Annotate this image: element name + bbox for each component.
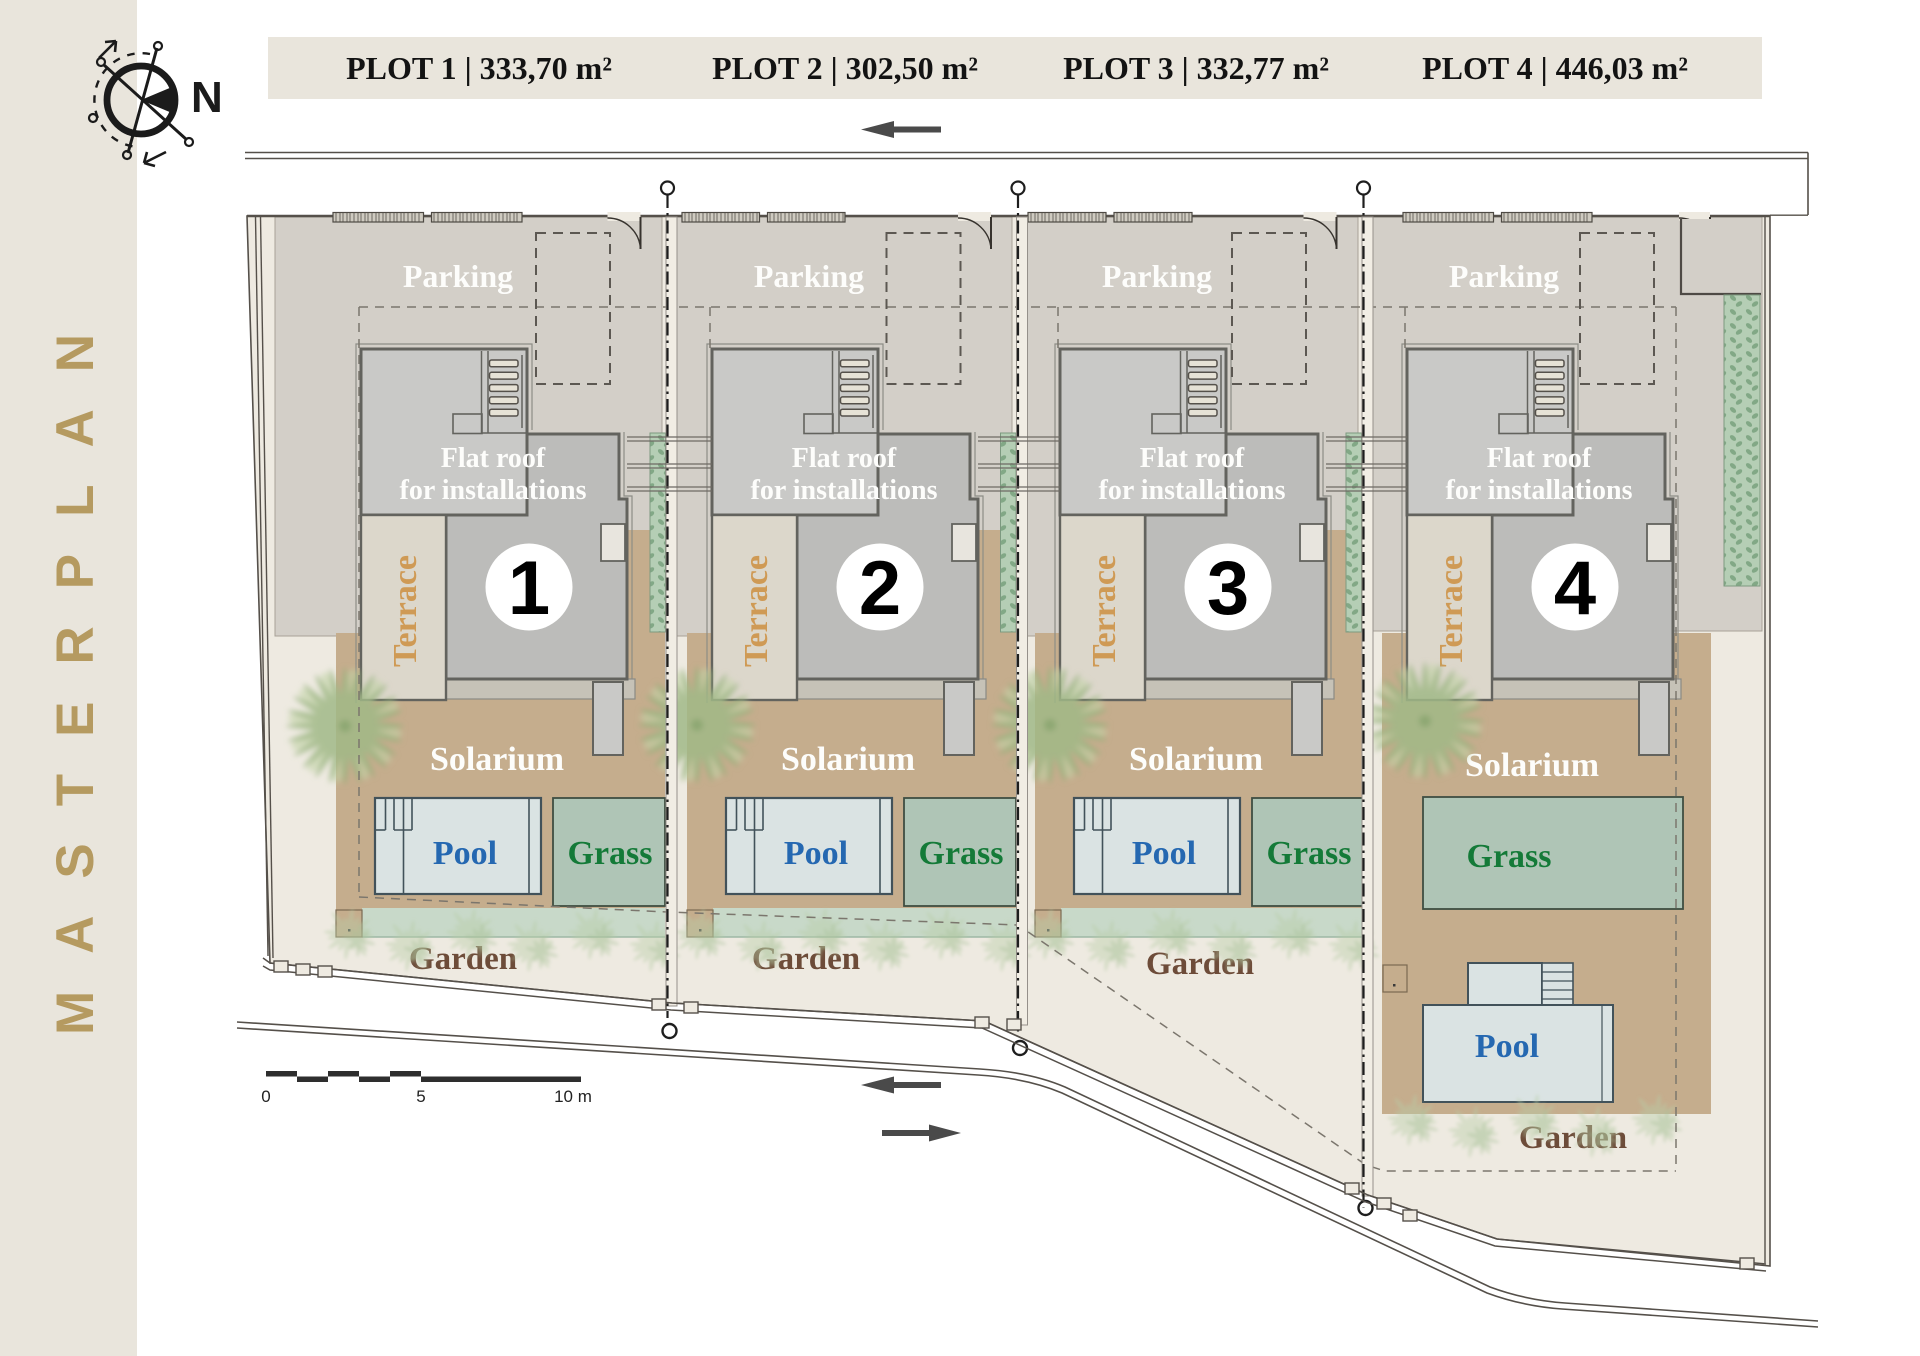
svg-text:Parking: Parking <box>754 258 864 294</box>
svg-text:Flat roof: Flat roof <box>1140 443 1245 474</box>
svg-text:10 m: 10 m <box>554 1087 592 1106</box>
svg-text:Parking: Parking <box>1102 258 1212 294</box>
svg-text:Grass: Grass <box>919 835 1004 872</box>
svg-text:Terrace: Terrace <box>738 555 775 667</box>
svg-text:3: 3 <box>1207 546 1249 631</box>
svg-text:4: 4 <box>1554 546 1596 631</box>
svg-text:Terrace: Terrace <box>1433 555 1470 667</box>
svg-text:Flat roof: Flat roof <box>1487 443 1592 474</box>
svg-text:for installations: for installations <box>1446 475 1633 506</box>
svg-text:for installations: for installations <box>400 475 587 506</box>
svg-text:Grass: Grass <box>1467 838 1552 875</box>
svg-text:N: N <box>191 73 223 122</box>
svg-text:Parking: Parking <box>1449 258 1559 294</box>
svg-text:PLOT 1 | 333,70 m²: PLOT 1 | 333,70 m² <box>346 50 612 86</box>
svg-text:Grass: Grass <box>1267 835 1352 872</box>
svg-text:Terrace: Terrace <box>387 555 424 667</box>
svg-text:PLOT 2 | 302,50 m²: PLOT 2 | 302,50 m² <box>712 50 978 86</box>
svg-text:Flat roof: Flat roof <box>441 443 546 474</box>
svg-text:Solarium: Solarium <box>1129 741 1263 778</box>
svg-text:for installations: for installations <box>1099 475 1286 506</box>
svg-text:Pool: Pool <box>433 835 497 872</box>
svg-text:1: 1 <box>508 546 550 631</box>
svg-text:PLOT 3 | 332,77 m²: PLOT 3 | 332,77 m² <box>1063 50 1329 86</box>
svg-text:Pool: Pool <box>1132 835 1196 872</box>
svg-text:for installations: for installations <box>751 475 938 506</box>
svg-text:MASTERPLAN: MASTERPLAN <box>46 297 105 1035</box>
svg-text:Solarium: Solarium <box>430 741 564 778</box>
svg-text:Solarium: Solarium <box>781 741 915 778</box>
svg-text:Pool: Pool <box>784 835 848 872</box>
svg-text:Solarium: Solarium <box>1465 747 1599 784</box>
svg-text:Parking: Parking <box>403 258 513 294</box>
svg-text:Terrace: Terrace <box>1086 555 1123 667</box>
svg-text:PLOT 4 | 446,03 m²: PLOT 4 | 446,03 m² <box>1422 50 1688 86</box>
svg-text:5: 5 <box>416 1087 425 1106</box>
svg-text:2: 2 <box>859 546 901 631</box>
svg-text:Flat roof: Flat roof <box>792 443 897 474</box>
svg-text:0: 0 <box>261 1087 270 1106</box>
svg-text:Grass: Grass <box>568 835 653 872</box>
svg-text:Pool: Pool <box>1475 1028 1539 1065</box>
